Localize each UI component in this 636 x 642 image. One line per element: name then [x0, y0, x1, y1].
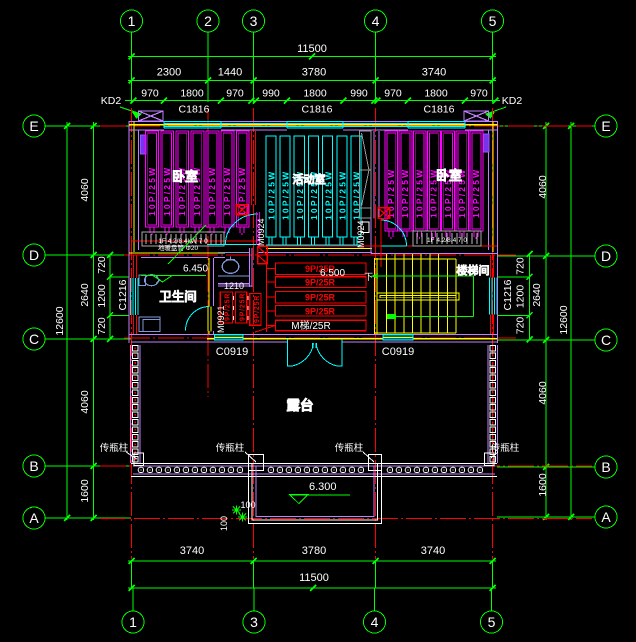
- svg-text:6.500: 6.500: [320, 268, 345, 279]
- svg-text:11500: 11500: [297, 43, 327, 55]
- svg-text:2300: 2300: [157, 67, 181, 79]
- svg-text:C1216: C1216: [117, 279, 129, 310]
- svg-text:M0921: M0921: [216, 305, 226, 333]
- svg-text:M梯/25R: M梯/25R: [291, 319, 330, 332]
- svg-text:C1816: C1816: [302, 104, 333, 116]
- svg-text:传瓶柱: 传瓶柱: [491, 442, 520, 454]
- svg-text:3780: 3780: [302, 545, 326, 557]
- svg-text:10P/25W: 10P/25W: [267, 170, 277, 220]
- svg-text:100: 100: [240, 500, 255, 510]
- svg-text:3740: 3740: [421, 545, 445, 557]
- svg-text:6.300: 6.300: [309, 481, 337, 493]
- svg-text:720: 720: [515, 257, 527, 275]
- svg-text:10P/25W: 10P/25W: [338, 170, 348, 220]
- svg-text:C: C: [601, 332, 611, 348]
- svg-text:D: D: [29, 247, 39, 263]
- svg-text:2640: 2640: [531, 283, 543, 307]
- svg-text:990: 990: [350, 88, 368, 100]
- svg-text:4060: 4060: [537, 175, 549, 199]
- svg-text:9P/25R: 9P/25R: [305, 278, 336, 288]
- svg-text:下: 下: [364, 272, 373, 282]
- svg-text:1600: 1600: [537, 473, 549, 497]
- svg-text:C0919: C0919: [216, 346, 248, 358]
- svg-text:A: A: [29, 510, 39, 526]
- svg-text:9P/25R: 9P/25R: [240, 293, 247, 321]
- svg-text:10P/25W: 10P/25W: [471, 168, 481, 218]
- svg-text:C0919: C0919: [382, 346, 414, 358]
- svg-text:1800: 1800: [303, 88, 327, 100]
- svg-text:C: C: [29, 331, 39, 347]
- svg-text:9P/25R: 9P/25R: [305, 293, 336, 303]
- svg-text:9P/25R: 9P/25R: [254, 295, 261, 323]
- svg-text:9P/25R: 9P/25R: [305, 307, 336, 317]
- svg-text:卧室: 卧室: [436, 168, 462, 183]
- svg-text:10P/25W: 10P/25W: [352, 170, 362, 220]
- svg-text:4060: 4060: [537, 381, 549, 405]
- svg-text:1: 1: [129, 614, 137, 630]
- svg-text:C1216: C1216: [502, 279, 514, 310]
- svg-text:10P/25W: 10P/25W: [162, 166, 172, 216]
- svg-text:1200: 1200: [96, 284, 108, 308]
- svg-text:KD2: KD2: [101, 95, 122, 107]
- svg-text:1440: 1440: [218, 67, 242, 79]
- svg-text:100: 100: [219, 516, 229, 531]
- svg-text:B: B: [29, 458, 38, 474]
- svg-text:3: 3: [250, 614, 258, 630]
- svg-text:990: 990: [262, 88, 280, 100]
- svg-text:4060: 4060: [79, 390, 91, 414]
- svg-text:970: 970: [470, 88, 488, 100]
- svg-text:3740: 3740: [180, 545, 204, 557]
- svg-text:2: 2: [204, 13, 212, 29]
- svg-text:4: 4: [372, 13, 380, 29]
- svg-text:1F 4.2/8.4kW 7 0: 1F 4.2/8.4kW 7 0: [158, 238, 208, 245]
- svg-text:活动室: 活动室: [293, 172, 326, 186]
- svg-text:11500: 11500: [299, 572, 329, 584]
- svg-text:2640: 2640: [79, 283, 91, 307]
- svg-text:楼梯间: 楼梯间: [457, 263, 490, 277]
- svg-text:C1816: C1816: [179, 104, 210, 116]
- svg-text:1210: 1210: [224, 281, 244, 291]
- svg-text:M0924: M0924: [356, 220, 366, 248]
- svg-text:传瓶柱: 传瓶柱: [216, 442, 245, 454]
- svg-text:6.450: 6.450: [183, 264, 208, 275]
- svg-text:10P/25W: 10P/25W: [400, 168, 410, 218]
- svg-text:10P/25W: 10P/25W: [207, 166, 217, 216]
- svg-text:12600: 12600: [54, 306, 66, 335]
- svg-text:10P/25W: 10P/25W: [281, 170, 291, 220]
- svg-text:4: 4: [371, 614, 379, 630]
- svg-text:720: 720: [96, 317, 108, 335]
- svg-text:KD2: KD2: [502, 95, 523, 107]
- svg-text:C1816: C1816: [424, 104, 455, 116]
- svg-text:1200: 1200: [515, 285, 527, 309]
- svg-text:4060: 4060: [79, 178, 91, 202]
- svg-text:970: 970: [141, 88, 159, 100]
- svg-text:A: A: [601, 509, 611, 525]
- svg-text:12600: 12600: [558, 305, 570, 334]
- svg-text:10P/25W: 10P/25W: [222, 166, 232, 216]
- svg-text:720: 720: [96, 256, 108, 274]
- svg-text:1600: 1600: [79, 479, 91, 503]
- svg-text:M0924: M0924: [256, 218, 266, 246]
- svg-text:720: 720: [515, 317, 527, 335]
- svg-text:B: B: [601, 459, 610, 475]
- svg-text:10P/25W: 10P/25W: [147, 166, 157, 216]
- svg-text:1F 4.2/8.4 7 0: 1F 4.2/8.4 7 0: [427, 237, 467, 244]
- svg-text:3: 3: [250, 13, 258, 29]
- svg-text:地暖盘管 Φ20: 地暖盘管 Φ20: [158, 243, 199, 252]
- svg-text:露台: 露台: [287, 397, 314, 413]
- svg-text:1800: 1800: [180, 88, 204, 100]
- svg-text:传瓶柱: 传瓶柱: [100, 442, 129, 454]
- svg-text:D: D: [601, 248, 611, 264]
- svg-text:5: 5: [488, 614, 496, 630]
- svg-text:E: E: [29, 118, 38, 134]
- svg-text:卫生间: 卫生间: [159, 289, 197, 304]
- svg-text:5: 5: [489, 13, 497, 29]
- svg-text:E: E: [601, 118, 610, 134]
- svg-text:传瓶柱: 传瓶柱: [335, 442, 364, 454]
- svg-text:1800: 1800: [424, 88, 448, 100]
- svg-text:970: 970: [384, 88, 402, 100]
- svg-text:10P/25W: 10P/25W: [237, 166, 247, 216]
- svg-text:970: 970: [226, 88, 244, 100]
- svg-text:10P/25W: 10P/25W: [414, 168, 424, 218]
- svg-text:3740: 3740: [422, 67, 446, 79]
- svg-text:卧室: 卧室: [172, 169, 198, 184]
- svg-text:1: 1: [128, 13, 136, 29]
- svg-text:3780: 3780: [302, 67, 326, 79]
